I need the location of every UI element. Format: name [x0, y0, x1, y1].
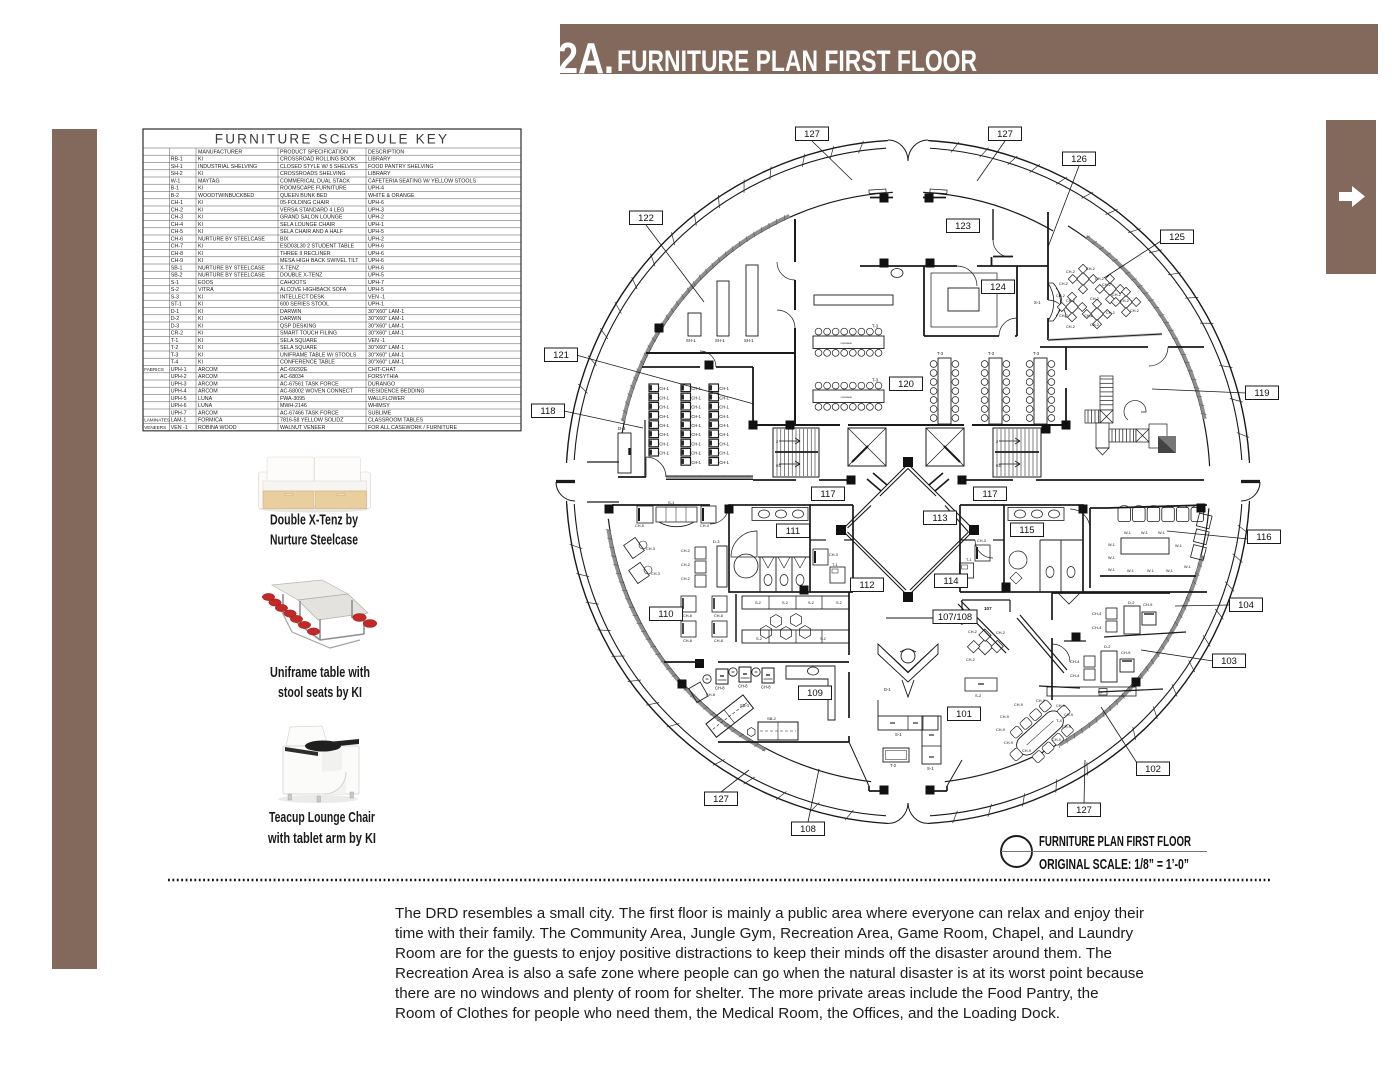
svg-text:CH-1: CH-1	[719, 423, 729, 428]
svg-text:UNIFRAME: UNIFRAME	[841, 342, 853, 345]
svg-text:119: 119	[1254, 388, 1269, 399]
svg-text:KI: KI	[198, 309, 203, 315]
svg-text:CH-5: CH-5	[635, 524, 644, 528]
svg-text:D-2: D-2	[1104, 644, 1111, 649]
svg-text:S-2: S-2	[975, 693, 982, 698]
svg-text:WHIMSY: WHIMSY	[368, 403, 390, 409]
svg-text:CH-9: CH-9	[1004, 741, 1013, 745]
svg-text:127: 127	[997, 129, 1013, 140]
svg-text:CH-2: CH-2	[1120, 299, 1129, 303]
svg-text:CROSSROAD ROLLING BOOK: CROSSROAD ROLLING BOOK	[280, 157, 356, 163]
svg-text:time with their family. The Co: time with their family. The Community Ar…	[395, 925, 1133, 942]
svg-text:104: 104	[1238, 600, 1254, 611]
svg-text:T-3: T-3	[171, 352, 179, 358]
svg-text:PRODUCT SPECIFICATION: PRODUCT SPECIFICATION	[280, 149, 348, 155]
svg-text:UPH-6: UPH-6	[368, 200, 384, 206]
svg-text:107/108: 107/108	[938, 612, 972, 623]
svg-text:CH-1: CH-1	[691, 414, 701, 419]
svg-text:W-1: W-1	[1184, 565, 1191, 569]
svg-text:115: 115	[1019, 525, 1034, 536]
svg-text:CH-2: CH-2	[1066, 325, 1075, 329]
svg-text:WALNUT VENEER: WALNUT VENEER	[280, 425, 326, 431]
svg-text:CH-1: CH-1	[691, 395, 701, 400]
svg-text:The DRD resembles a small city: The DRD resembles a small city. The firs…	[395, 905, 1144, 922]
svg-text:CH-1: CH-1	[659, 441, 669, 446]
svg-text:30"X60" LAM-1: 30"X60" LAM-1	[368, 345, 404, 351]
svg-text:CH-1: CH-1	[719, 451, 729, 456]
svg-text:KI: KI	[198, 222, 203, 228]
svg-text:CH-4: CH-4	[1070, 673, 1080, 678]
svg-text:CH-1: CH-1	[659, 423, 669, 428]
svg-text:Room are for the guests to enj: Room are for the guests to enjoy positiv…	[395, 945, 1112, 962]
svg-text:FWA-3095: FWA-3095	[280, 396, 305, 402]
svg-text:D-3: D-3	[171, 323, 180, 329]
svg-text:KI: KI	[198, 251, 203, 257]
svg-text:SELA LOUNGE CHAIR: SELA LOUNGE CHAIR	[280, 222, 335, 228]
svg-text:CH-8: CH-8	[171, 251, 183, 257]
svg-text:WHITE & ORANGE: WHITE & ORANGE	[368, 193, 415, 199]
svg-text:RB-1: RB-1	[171, 157, 183, 163]
svg-text:KI: KI	[198, 316, 203, 322]
svg-text:ROBINA WOOD: ROBINA WOOD	[198, 425, 237, 431]
svg-text:FOOD PANTRY SHELVING: FOOD PANTRY SHELVING	[368, 164, 434, 170]
svg-text:SELA SQUARE: SELA SQUARE	[280, 345, 318, 351]
svg-text:B-2: B-2	[171, 193, 179, 199]
svg-text:AC-67561 TASK FORCE: AC-67561 TASK FORCE	[280, 381, 339, 387]
svg-text:Recreation Area is also a safe: Recreation Area is also a safe zone wher…	[395, 965, 1144, 982]
svg-text:T-3: T-3	[872, 324, 879, 329]
svg-text:30"X60" LAM-1: 30"X60" LAM-1	[368, 316, 404, 322]
svg-text:Double X-Tenz by: Double X-Tenz by	[270, 512, 358, 529]
svg-text:UPH-5: UPH-5	[368, 229, 384, 235]
svg-text:UPH-7: UPH-7	[171, 410, 187, 416]
svg-text:CH-2: CH-2	[1090, 297, 1099, 301]
svg-text:05-FOLDING CHAIR: 05-FOLDING CHAIR	[280, 200, 329, 206]
svg-text:KI: KI	[198, 207, 203, 213]
svg-text:SB-1: SB-1	[171, 265, 183, 271]
svg-text:W-1: W-1	[1108, 543, 1115, 547]
svg-text:CH-4: CH-4	[1092, 625, 1102, 630]
svg-text:30"X60" LAM-1: 30"X60" LAM-1	[368, 309, 404, 315]
svg-text:ARCOM: ARCOM	[198, 410, 218, 416]
svg-text:KI: KI	[198, 258, 203, 264]
svg-text:AC-67466 TASK FORCE: AC-67466 TASK FORCE	[280, 410, 339, 416]
svg-text:stool seats by KI: stool seats by KI	[278, 684, 362, 701]
svg-text:T-3: T-3	[872, 378, 879, 383]
svg-text:UPH-6: UPH-6	[368, 251, 384, 257]
svg-text:KI: KI	[198, 229, 203, 235]
svg-text:UNIFRAME TABLE W/ STOOLS: UNIFRAME TABLE W/ STOOLS	[280, 352, 357, 358]
svg-text:CH-8: CH-8	[683, 639, 692, 643]
svg-text:S-2: S-2	[808, 601, 814, 605]
svg-text:T-3: T-3	[937, 351, 944, 356]
svg-text:MWH-2146: MWH-2146	[280, 403, 307, 409]
svg-text:UPH-2: UPH-2	[368, 215, 384, 221]
svg-text:CH-9: CH-9	[1000, 715, 1009, 719]
svg-text:KI: KI	[198, 345, 203, 351]
svg-text:CONFERENCE TABLE: CONFERENCE TABLE	[280, 360, 335, 366]
svg-text:DARWIN: DARWIN	[280, 309, 302, 315]
svg-text:AC-69292E: AC-69292E	[280, 367, 308, 373]
svg-text:122: 122	[638, 213, 654, 224]
svg-text:UPH-2: UPH-2	[171, 374, 187, 380]
svg-text:WOODTWINBUCKBED: WOODTWINBUCKBED	[198, 193, 254, 199]
svg-text:CH-9: CH-9	[1036, 699, 1045, 703]
svg-text:CH-2: CH-2	[966, 658, 975, 662]
svg-text:KI: KI	[198, 323, 203, 329]
svg-text:CAHOOTS: CAHOOTS	[280, 280, 307, 286]
svg-text:CH-1: CH-1	[691, 460, 701, 465]
svg-text:GRAND SALON LOUNGE: GRAND SALON LOUNGE	[280, 215, 343, 221]
svg-text:KI: KI	[198, 331, 203, 337]
svg-text:CH-2: CH-2	[1066, 270, 1075, 274]
svg-text:CH-2: CH-2	[1084, 314, 1093, 318]
svg-text:LAMINATES: LAMINATES	[144, 418, 170, 423]
svg-text:CROSSROADS SHELVING: CROSSROADS SHELVING	[280, 171, 346, 177]
svg-text:CH-2: CH-2	[1059, 314, 1068, 318]
svg-text:CH-1: CH-1	[691, 441, 701, 446]
svg-text:ARCOM: ARCOM	[198, 374, 218, 380]
svg-text:LUNA: LUNA	[198, 396, 213, 402]
svg-text:121: 121	[553, 350, 569, 361]
svg-text:CH-2: CH-2	[1059, 282, 1068, 286]
svg-text:CH-1: CH-1	[659, 405, 669, 410]
svg-text:CH-9: CH-9	[1022, 749, 1031, 753]
svg-text:W-1: W-1	[171, 178, 181, 184]
svg-text:W-1: W-1	[1124, 531, 1131, 535]
svg-text:CH-9: CH-9	[1121, 650, 1131, 655]
svg-text:CH-9: CH-9	[1056, 704, 1065, 708]
svg-text:CH-9: CH-9	[1143, 602, 1153, 607]
svg-text:UNIFRAME: UNIFRAME	[841, 396, 853, 399]
svg-text:SH-1: SH-1	[686, 338, 696, 343]
svg-text:CH-2: CH-2	[1106, 311, 1115, 315]
svg-text:FURNITURE SCHEDULE KEY: FURNITURE SCHEDULE KEY	[215, 132, 449, 147]
svg-text:CH-8: CH-8	[738, 684, 748, 689]
svg-text:CH-2: CH-2	[1102, 283, 1111, 287]
svg-text:CH-1: CH-1	[719, 432, 729, 437]
svg-text:30"X60" LAM-1: 30"X60" LAM-1	[368, 331, 404, 337]
svg-text:T-2: T-2	[171, 345, 179, 351]
svg-text:CH-4: CH-4	[1070, 659, 1080, 664]
svg-text:FORMICA: FORMICA	[198, 418, 223, 424]
svg-text:COMMERICAL DUAL STACK: COMMERICAL DUAL STACK	[280, 178, 350, 184]
svg-text:CH-9: CH-9	[171, 258, 183, 264]
svg-text:DOUBLE X-TENZ: DOUBLE X-TENZ	[280, 273, 323, 279]
svg-text:SH-1: SH-1	[744, 338, 754, 343]
svg-text:UPH-2: UPH-2	[368, 236, 384, 242]
svg-text:UPH-6: UPH-6	[368, 244, 384, 250]
svg-text:CH-2: CH-2	[996, 631, 1005, 635]
svg-text:UPH-5: UPH-5	[368, 273, 384, 279]
svg-text:123: 123	[955, 221, 971, 232]
svg-text:RD: RD	[996, 464, 1002, 468]
svg-text:ROOMSCAPE FURNITURE: ROOMSCAPE FURNITURE	[280, 186, 347, 192]
svg-text:KI: KI	[198, 352, 203, 358]
svg-text:CH-1: CH-1	[659, 451, 669, 456]
svg-text:ORIGINAL SCALE: 1/8” = 1’-0”: ORIGINAL SCALE: 1/8” = 1’-0”	[1039, 857, 1189, 873]
svg-text:KI: KI	[198, 215, 203, 221]
svg-text:CH-8: CH-8	[683, 614, 692, 618]
svg-text:VEN -1: VEN -1	[368, 294, 385, 300]
svg-text:VERSA STANDARD 4 LEG: VERSA STANDARD 4 LEG	[280, 207, 344, 213]
svg-text:SB-1: SB-1	[740, 703, 750, 708]
svg-text:SUBLIME: SUBLIME	[368, 410, 392, 416]
svg-text:CH-2: CH-2	[681, 563, 690, 567]
svg-text:CH-2: CH-2	[1112, 293, 1121, 297]
svg-text:101: 101	[956, 709, 972, 720]
svg-text:120: 120	[898, 379, 914, 390]
svg-text:CH-1: CH-1	[659, 432, 669, 437]
svg-text:UPH-6: UPH-6	[368, 258, 384, 264]
svg-text:QSP DESKING: QSP DESKING	[280, 323, 316, 329]
svg-text:FABRICS: FABRICS	[144, 367, 164, 372]
svg-text:CH-3: CH-3	[829, 553, 838, 557]
svg-text:KI: KI	[198, 244, 203, 250]
svg-text:SB-2: SB-2	[767, 716, 777, 721]
svg-text:CH-1: CH-1	[719, 405, 729, 410]
svg-text:INTELLECT DESK: INTELLECT DESK	[280, 294, 325, 300]
svg-text:KI: KI	[198, 302, 203, 308]
svg-text:CH-4: CH-4	[1092, 611, 1102, 616]
svg-text:B-1: B-1	[171, 186, 179, 192]
svg-text:S-3: S-3	[171, 294, 179, 300]
svg-text:T-4: T-4	[171, 360, 179, 366]
svg-text:UPH-3: UPH-3	[171, 381, 187, 387]
svg-text:D-1: D-1	[884, 687, 891, 692]
svg-text:MAYTAG: MAYTAG	[198, 178, 220, 184]
svg-text:S-2: S-2	[171, 287, 179, 293]
svg-text:UPH-3: UPH-3	[368, 207, 384, 213]
svg-text:UPH-1: UPH-1	[368, 302, 384, 308]
svg-text:D-2: D-2	[171, 316, 180, 322]
svg-text:117: 117	[982, 489, 997, 500]
svg-text:127: 127	[804, 129, 820, 140]
svg-text:UPH-5: UPH-5	[368, 287, 384, 293]
svg-text:KI: KI	[198, 157, 203, 163]
svg-text:FURNITURE PLAN FIRST FLOOR: FURNITURE PLAN FIRST FLOOR	[1039, 834, 1191, 850]
svg-text:111: 111	[786, 526, 800, 537]
svg-text:CH-1: CH-1	[691, 432, 701, 437]
svg-text:MANUFACTURER: MANUFACTURER	[198, 149, 242, 155]
svg-text:Uniframe table with: Uniframe table with	[270, 664, 370, 681]
svg-text:CHIT-CHAT: CHIT-CHAT	[368, 367, 397, 373]
svg-text:125: 125	[1169, 232, 1185, 243]
svg-text:CLASSROOM TABLES: CLASSROOM TABLES	[368, 418, 424, 424]
svg-text:W-1: W-1	[1127, 569, 1134, 573]
svg-text:LAM-1: LAM-1	[171, 418, 187, 424]
svg-text:T-3: T-3	[1033, 351, 1040, 356]
svg-text:S-2: S-2	[755, 601, 761, 605]
svg-text:CH-4: CH-4	[171, 222, 183, 228]
svg-text:124: 124	[990, 282, 1006, 293]
svg-text:KI: KI	[198, 360, 203, 366]
svg-text:CH-8: CH-8	[761, 685, 771, 690]
svg-text:AC-68034: AC-68034	[280, 374, 304, 380]
svg-text:CH-1: CH-1	[659, 395, 669, 400]
svg-text:D-3: D-3	[618, 426, 626, 431]
svg-text:NURTURE BY STEELCASE: NURTURE BY STEELCASE	[198, 265, 265, 271]
svg-text:KI: KI	[198, 200, 203, 206]
svg-text:W-1: W-1	[1175, 544, 1182, 548]
svg-text:RESIDENCE BEDDING: RESIDENCE BEDDING	[368, 389, 425, 395]
svg-text:CH-3: CH-3	[651, 572, 660, 576]
svg-text:SH-1: SH-1	[171, 164, 183, 170]
svg-text:CH-9: CH-9	[1062, 725, 1071, 729]
svg-text:107: 107	[984, 606, 992, 611]
svg-text:CH-2: CH-2	[1056, 294, 1065, 298]
svg-text:ARCOM: ARCOM	[198, 367, 218, 373]
svg-text:114: 114	[943, 576, 958, 587]
svg-text:127: 127	[1076, 805, 1092, 816]
svg-text:T-1: T-1	[832, 563, 838, 567]
svg-text:CH-1: CH-1	[719, 441, 729, 446]
svg-text:CH-6: CH-6	[171, 236, 183, 242]
svg-text:30"X60" LAM-1: 30"X60" LAM-1	[368, 352, 404, 358]
svg-text:T-2: T-2	[890, 763, 897, 768]
svg-text:CH-1: CH-1	[691, 451, 701, 456]
svg-text:S-1: S-1	[927, 766, 934, 771]
svg-text:CH-2: CH-2	[171, 207, 183, 213]
svg-text:UPH-6: UPH-6	[368, 265, 384, 271]
svg-text:CH-8: CH-8	[706, 693, 715, 697]
svg-text:W-1: W-1	[1108, 556, 1115, 560]
svg-text:110: 110	[658, 609, 673, 620]
svg-text:CH-2: CH-2	[1095, 277, 1104, 281]
svg-text:T-4: T-4	[1056, 718, 1063, 723]
svg-text:CH-1: CH-1	[659, 386, 669, 391]
svg-text:CH-1: CH-1	[691, 423, 701, 428]
svg-text:T-1: T-1	[171, 338, 179, 344]
svg-text:CH-8: CH-8	[715, 686, 725, 691]
svg-text:113: 113	[932, 513, 947, 524]
svg-text:NURTURE BY STEELCASE: NURTURE BY STEELCASE	[198, 236, 265, 242]
svg-text:102: 102	[1145, 764, 1161, 775]
svg-text:NURTURE BY STEELCASE: NURTURE BY STEELCASE	[198, 273, 265, 279]
svg-text:AC-68002 WOVEN CONNECT: AC-68002 WOVEN CONNECT	[280, 389, 354, 395]
svg-text:MESA HIGH BACK SWIVEL TILT: MESA HIGH BACK SWIVEL TILT	[280, 258, 359, 264]
svg-text:DARWIN: DARWIN	[280, 316, 302, 322]
svg-text:D-1: D-1	[171, 309, 180, 315]
svg-text:ESD03L30 2 STUDENT TABLE: ESD03L30 2 STUDENT TABLE	[280, 244, 355, 250]
svg-text:CH-5: CH-5	[171, 229, 183, 235]
svg-text:D-3: D-3	[713, 539, 720, 544]
svg-text:118: 118	[540, 406, 555, 417]
svg-text:CH-9: CH-9	[996, 728, 1005, 732]
svg-text:VEN -1: VEN -1	[171, 425, 188, 431]
svg-text:ALCOVE HIGHBACK SOFA: ALCOVE HIGHBACK SOFA	[280, 287, 347, 293]
svg-text:CH-1: CH-1	[691, 405, 701, 410]
svg-text:S-2: S-2	[836, 601, 842, 605]
svg-text:EOOS: EOOS	[198, 280, 214, 286]
svg-text:X-TENZ: X-TENZ	[280, 265, 300, 271]
svg-text:UPH-4: UPH-4	[368, 186, 384, 192]
svg-text:SMART TOUCH FILING: SMART TOUCH FILING	[280, 331, 337, 337]
svg-text:CH-9: CH-9	[1052, 738, 1061, 742]
svg-text:CH-2: CH-2	[968, 630, 977, 634]
svg-text:CR-2: CR-2	[171, 331, 183, 337]
svg-text:S-2: S-2	[820, 637, 826, 641]
svg-text:CH-7: CH-7	[171, 244, 183, 250]
svg-text:SELA CHAIR AND A HALF: SELA CHAIR AND A HALF	[280, 229, 344, 235]
svg-text:UPH-1: UPH-1	[171, 367, 187, 373]
svg-text:D-2: D-2	[1128, 600, 1135, 605]
svg-text:INDUSTRIAL SHELVING: INDUSTRIAL SHELVING	[198, 164, 257, 170]
svg-text:116: 116	[1256, 532, 1271, 543]
svg-text:SB-2: SB-2	[171, 273, 183, 279]
svg-text:CH-2: CH-2	[1090, 323, 1099, 327]
svg-text:RD: RD	[776, 464, 782, 468]
svg-text:CH-2: CH-2	[681, 549, 690, 553]
svg-text:CH-2: CH-2	[1066, 299, 1075, 303]
svg-text:ARCOM: ARCOM	[198, 389, 218, 395]
svg-text:CH-2: CH-2	[1086, 267, 1095, 271]
svg-text:W-1: W-1	[1108, 568, 1115, 572]
svg-text:CH-1: CH-1	[659, 414, 669, 419]
svg-text:CH-8: CH-8	[714, 639, 723, 643]
svg-text:BIX: BIX	[280, 236, 289, 242]
svg-text:109: 109	[807, 688, 823, 699]
svg-text:DESCRIPTION: DESCRIPTION	[368, 149, 404, 155]
svg-text:CH-1: CH-1	[719, 460, 729, 465]
svg-text:W-1: W-1	[1158, 531, 1165, 535]
svg-text:30"X60" LAM-1: 30"X60" LAM-1	[368, 360, 404, 366]
svg-text:30"X60" LAM-1: 30"X60" LAM-1	[368, 323, 404, 329]
svg-text:W-1: W-1	[1166, 569, 1173, 573]
svg-text:S-1: S-1	[171, 280, 179, 286]
svg-text:VEN -1: VEN -1	[368, 338, 385, 344]
svg-text:S-2: S-2	[756, 637, 762, 641]
svg-text:2A.: 2A.	[558, 34, 614, 83]
svg-text:UPH-4: UPH-4	[171, 389, 187, 395]
svg-text:103: 103	[1221, 656, 1237, 667]
svg-text:CH-8: CH-8	[714, 614, 723, 618]
svg-text:126: 126	[1071, 154, 1087, 165]
svg-text:KI: KI	[198, 186, 203, 192]
svg-text:CH-1: CH-1	[171, 200, 183, 206]
svg-text:SH-1: SH-1	[715, 338, 725, 343]
svg-text:CH-3: CH-3	[646, 547, 655, 551]
svg-text:W-1: W-1	[1147, 569, 1154, 573]
svg-text:CH-2: CH-2	[681, 577, 690, 581]
svg-text:CH-3: CH-3	[977, 539, 986, 543]
svg-text:W-1: W-1	[1141, 531, 1148, 535]
svg-text:with tablet arm by KI: with tablet arm by KI	[267, 830, 376, 847]
svg-text:S-1: S-1	[1034, 300, 1041, 305]
svg-text:FURNITURE PLAN FIRST FLOOR: FURNITURE PLAN FIRST FLOOR	[617, 45, 977, 78]
svg-text:LIBRARY: LIBRARY	[368, 171, 391, 177]
svg-text:600 SERIES STOOL: 600 SERIES STOOL	[280, 302, 329, 308]
svg-text:there are no windows and plent: there are no windows and plenty of room …	[395, 985, 1099, 1002]
svg-text:108: 108	[800, 824, 816, 835]
svg-text:CH-4: CH-4	[700, 524, 709, 528]
svg-text:CH-9: CH-9	[1014, 703, 1023, 707]
svg-text:VENEERS: VENEERS	[144, 425, 166, 430]
svg-text:FORSYTHIA: FORSYTHIA	[368, 374, 399, 380]
svg-text:FOR ALL CASEWORK / FURNITURE: FOR ALL CASEWORK / FURNITURE	[368, 425, 457, 431]
svg-text:LUNA: LUNA	[198, 403, 213, 409]
svg-text:CH-3: CH-3	[171, 215, 183, 221]
svg-text:T-3: T-3	[988, 351, 995, 356]
svg-text:UPH-6: UPH-6	[171, 403, 187, 409]
svg-text:UPH-1: UPH-1	[368, 222, 384, 228]
svg-text:SELA SQUARE: SELA SQUARE	[280, 338, 318, 344]
svg-text:S-2: S-2	[782, 601, 788, 605]
svg-text:VITRA: VITRA	[198, 287, 214, 293]
svg-text:CH-2: CH-2	[1130, 309, 1139, 313]
svg-text:SH-2: SH-2	[171, 171, 183, 177]
svg-text:DURANGO: DURANGO	[368, 381, 395, 387]
